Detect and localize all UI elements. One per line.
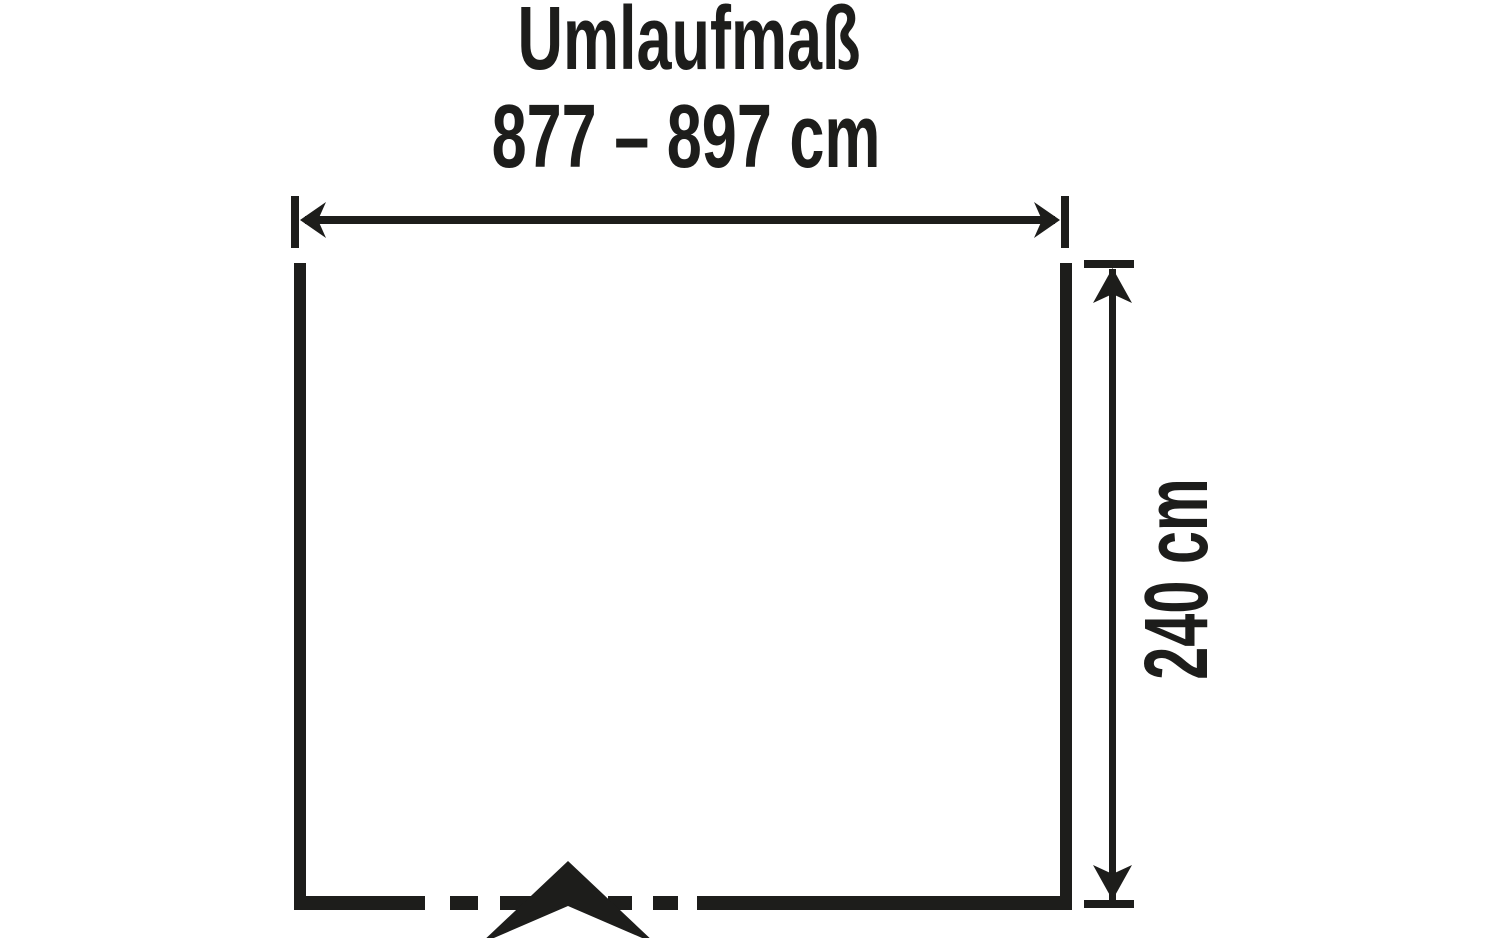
plan-linework (0, 0, 1500, 938)
right-wall (1060, 263, 1072, 910)
width-dim-left-tick (291, 196, 299, 248)
width-dim-line (305, 216, 1055, 224)
bottom-wall-left-segment (294, 896, 425, 910)
height-dim-top-tick (1084, 260, 1134, 268)
bottom-dash-4 (653, 896, 678, 910)
horizontal-dimension-arrow (291, 196, 1069, 248)
dimension-diagram: Umlaufmaß 877 – 897 cm 240 cm (0, 0, 1500, 938)
width-dim-right-tick (1061, 196, 1069, 248)
bottom-dash-1 (450, 896, 478, 910)
bottom-wall-right-segment (697, 896, 1072, 910)
height-dim-bottom-tick (1084, 900, 1134, 908)
floor-plan-outline (294, 263, 1072, 910)
height-dim-line (1109, 269, 1116, 900)
left-wall (294, 263, 306, 910)
vertical-dimension-arrow (1084, 260, 1134, 908)
